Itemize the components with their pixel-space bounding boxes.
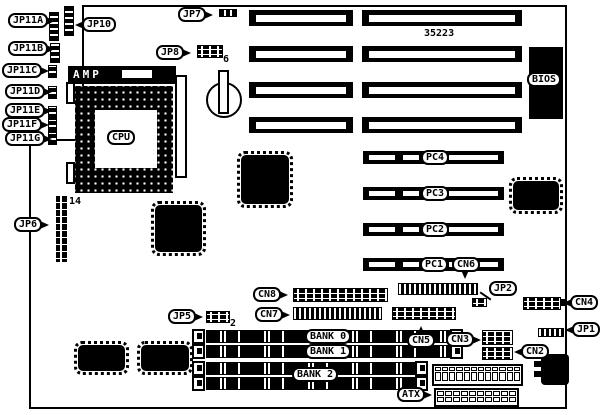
- jp11d-label: JP11D: [5, 84, 45, 99]
- cn6-header: [398, 283, 478, 295]
- pc1-label: PC1: [420, 257, 448, 272]
- bank2a-right-clip: [415, 361, 428, 376]
- jp8-pin-number: 6: [223, 54, 229, 65]
- cn5-label: CN5: [407, 333, 435, 348]
- bank1-label: BANK 1: [305, 344, 351, 359]
- atx-power-connector: [434, 388, 519, 407]
- io-chip: [509, 177, 563, 214]
- bank2a-left-clip: [192, 361, 205, 376]
- cn6-label: CN6: [452, 257, 480, 272]
- jp11g-label: JP11G: [5, 131, 45, 146]
- cn7-header: [293, 307, 382, 320]
- cache-chip-2: [137, 341, 193, 375]
- at-power-connector: [432, 364, 523, 386]
- jp1-header: [538, 328, 564, 337]
- atx-label: ATX: [397, 387, 425, 402]
- jp6-header: [56, 196, 67, 262]
- cn7-label: CN7: [255, 307, 283, 322]
- jp11c-label: JP11C: [2, 63, 42, 78]
- cn4-connector: [523, 297, 561, 310]
- jp8-jumper: [197, 45, 223, 58]
- jp1-label: JP1: [572, 322, 600, 337]
- cn3-label: CN3: [446, 332, 474, 347]
- cn8-label: CN8: [253, 287, 281, 302]
- cpu-label: CPU: [107, 130, 135, 145]
- jp2-jumper: [472, 298, 487, 307]
- jp5-pin-number: 2: [230, 318, 236, 329]
- socket-lever: [175, 75, 187, 178]
- jp7-jumper: [219, 9, 237, 17]
- jp11e-label: JP11E: [5, 103, 45, 118]
- part-number: 35223: [424, 28, 454, 39]
- cn2-label: CN2: [521, 344, 549, 359]
- jp5-jumper: [206, 311, 230, 323]
- jp11f-jumper: [48, 119, 57, 132]
- isa-slot-1-right: [362, 10, 522, 26]
- socket-tab-top: [66, 82, 75, 104]
- motherboard-diagram: JP11A JP11B JP11C JP11D JP11E JP11F JP11…: [0, 0, 605, 415]
- jp11b-label: JP11B: [8, 41, 48, 56]
- lever-slot: [122, 70, 152, 78]
- bios-label: BIOS: [527, 72, 561, 87]
- chipset-chip-1: [237, 151, 293, 208]
- isa-slot-1-left: [249, 10, 353, 26]
- bank1-left-clip: [192, 344, 205, 359]
- isa-slot-4-right: [362, 117, 522, 133]
- isa-slot-2-left: [249, 46, 353, 62]
- jp11c-jumper: [48, 65, 57, 78]
- jp5-label: JP5: [168, 309, 196, 324]
- cn2-header: [482, 347, 513, 360]
- socket-brand-text: AMP: [73, 68, 102, 81]
- pc3-label: PC3: [421, 186, 449, 201]
- jp7-label: JP7: [178, 7, 206, 22]
- pc2-label: PC2: [421, 222, 449, 237]
- bank0-label: BANK 0: [305, 329, 351, 344]
- isa-slot-3-right: [362, 82, 522, 98]
- keyboard-connector-pin-1: [534, 361, 541, 367]
- pc4-label: PC4: [421, 150, 449, 165]
- keyboard-connector-pin-2: [534, 371, 541, 377]
- isa-slot-4-left: [249, 117, 353, 133]
- cn8-header: [293, 288, 388, 302]
- cpu-socket-lever-bar: AMP: [68, 66, 176, 84]
- cn3-header: [482, 330, 513, 345]
- jp8-label: JP8: [156, 45, 184, 60]
- jp10-jumper: [64, 6, 74, 36]
- jp11a-label: JP11A: [8, 13, 48, 28]
- cn4-label: CN4: [570, 295, 598, 310]
- isa-slot-2-right: [362, 46, 522, 62]
- cn5-header: [392, 307, 456, 320]
- jp2-label: JP2: [489, 281, 517, 296]
- jp6-pin-count: 14: [69, 196, 81, 207]
- bank2b-left-clip: [192, 376, 205, 391]
- jp10-label: JP10: [82, 17, 116, 32]
- jp11f-label: JP11F: [2, 117, 42, 132]
- jp6-label: JP6: [14, 217, 42, 232]
- cache-chip-1: [74, 341, 129, 375]
- battery-stick: [218, 70, 229, 114]
- bank2-label: BANK 2: [292, 367, 338, 382]
- chipset-chip-2: [151, 201, 206, 256]
- bank0-left-clip: [192, 329, 205, 344]
- socket-tab-bottom: [66, 162, 75, 184]
- isa-slot-3-left: [249, 82, 353, 98]
- keyboard-connector: [541, 354, 569, 385]
